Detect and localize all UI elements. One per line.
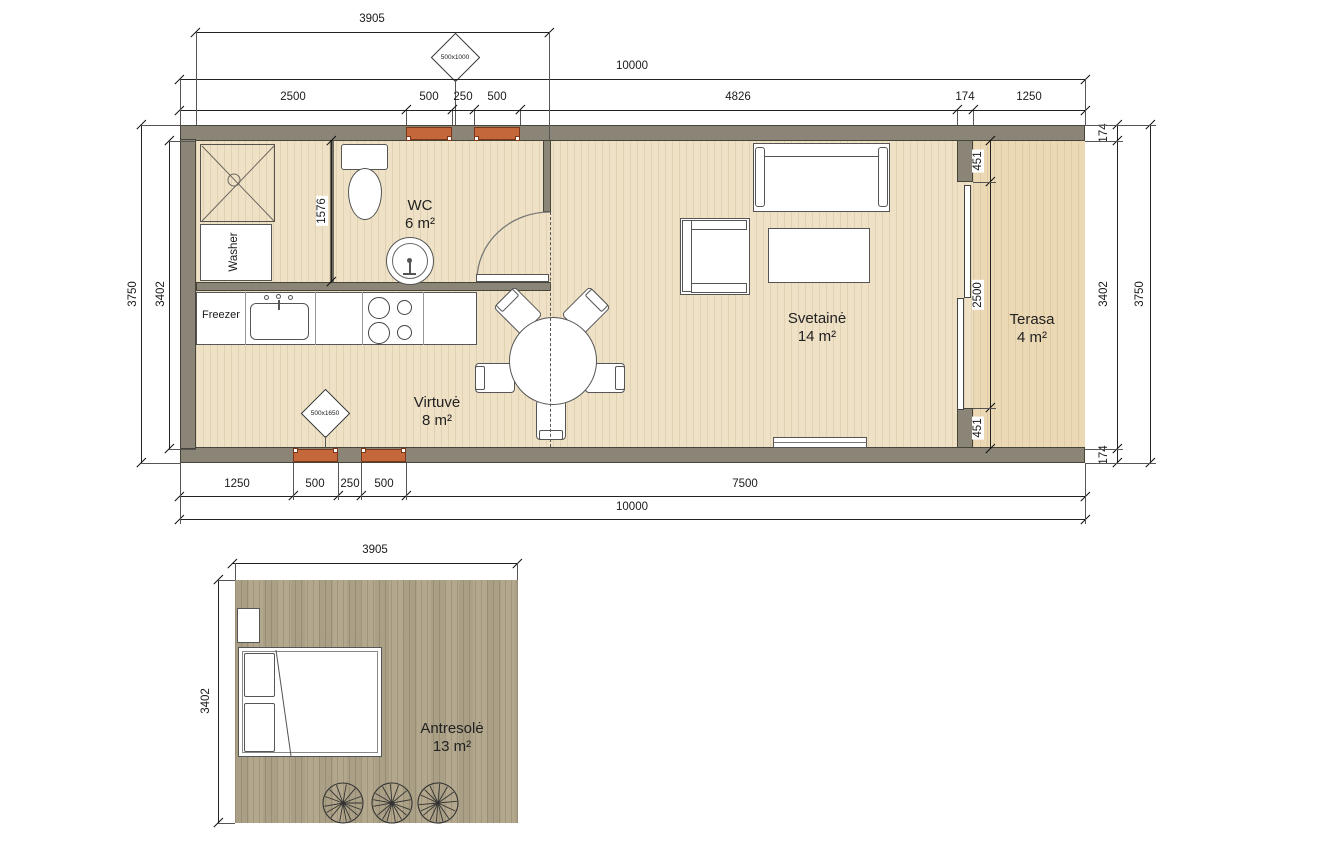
floorplan-drawing: Washer Freezer [0,0,1329,853]
room-name: WC [405,197,435,215]
wc-partition-wall [543,140,551,212]
terrace-wall-stub-bottom [957,408,973,448]
dim-line-top-chain [180,110,1085,111]
faucet-dot [276,294,281,299]
extension-line [1085,463,1156,464]
dim-text: 250 [453,91,472,103]
dim-text: 3402 [1098,281,1110,307]
extension-line [169,449,196,450]
faucet-dot [264,295,269,300]
room-name: Svetainė [788,310,846,328]
stove-burner [397,325,412,340]
dim-line-loft-height [218,580,219,823]
shower-pattern [201,145,276,223]
room-label-kitchen: Virtuvė 8 m² [414,394,460,430]
window-size-label: 500x1650 [302,390,348,436]
extension-line [196,32,197,125]
faucet-dot [288,295,293,300]
bathroom-partition-wall [196,282,551,291]
extension-line [338,463,339,500]
dim-text: 250 [340,478,359,490]
dim-text: 10000 [616,501,648,513]
extension-line [973,182,996,183]
terrace-wall-stub-top [957,140,973,182]
pillow [244,653,275,697]
blanket-fold-line [272,648,296,758]
room-area: 14 m² [788,328,846,346]
dim-text: 174 [1098,123,1110,142]
counter-divider [315,292,316,345]
sliding-door-panel [964,185,971,298]
chair [536,400,566,440]
extension-line [1085,463,1086,524]
window-marker-diamond: 500x1650 [302,390,348,436]
toilet-tank [341,144,388,170]
extension-line [517,563,518,580]
dim-line-bath [331,141,332,282]
dim-text: 3402 [200,688,212,714]
extension-line [474,111,475,125]
dim-text: 3750 [1134,281,1146,307]
dim-text: 2500 [280,91,306,103]
extension-line [180,79,181,125]
dim-text: 3905 [362,544,388,556]
room-name: Antresolė [420,720,483,738]
room-area: 4 m² [1009,329,1054,347]
door-swing-arc [474,210,552,282]
counter-divider [423,292,424,345]
dim-text: 500 [487,91,506,103]
extension-line [520,111,521,125]
wall-left [180,139,196,449]
nightstand [237,608,260,643]
dining-table [509,317,597,405]
extension-line [973,408,996,409]
dim-line-10000-top [180,79,1085,80]
room-area: 13 m² [420,738,483,756]
section-line [550,212,551,447]
extension-line [452,111,453,125]
room-label-terrace: Terasa 4 m² [1009,311,1054,347]
dim-text: 3402 [155,281,167,307]
room-area: 8 m² [414,412,460,430]
window [293,449,338,462]
extension-line [1085,79,1086,125]
ceiling-fan-symbols [322,781,462,825]
stove-burner [368,297,390,319]
room-label-wc: WC 6 m² [405,197,435,233]
coffee-table [768,228,870,283]
stove-burner [368,322,390,344]
extension-line [957,111,958,125]
dim-text: 7500 [732,478,758,490]
sliding-door-panel [957,298,964,410]
extension-line [1085,449,1123,450]
stove-burner [397,300,412,315]
door-leaf [476,274,549,282]
sofa [753,143,890,212]
extension-line [293,463,294,500]
window [406,127,452,140]
extension-line [361,463,362,500]
marker-stem [325,436,326,448]
dim-line-loft-width [233,563,517,564]
dim-line-10000-bottom [180,519,1085,520]
dim-line-left-outer [141,125,142,463]
dim-text: 451 [972,149,984,172]
extension-line [235,563,236,580]
dim-line-right-outer [1150,125,1151,463]
wc-sink-faucet-bar [403,273,416,275]
dim-text: 4826 [725,91,751,103]
extension-line [406,463,407,500]
counter-divider [362,292,363,345]
extension-line [141,463,180,464]
dim-text: 174 [955,91,974,103]
room-label-loft: Antresolė 13 m² [420,720,483,756]
sofa-backrest [764,144,879,157]
extension-line [218,580,235,581]
room-label-living: Svetainė 14 m² [788,310,846,346]
dim-line-left-inner [169,141,170,449]
counter-divider [245,292,246,345]
dim-text: 3750 [127,281,139,307]
extension-line [169,141,196,142]
room-name: Virtuvė [414,394,460,412]
dim-text: 2500 [972,280,984,310]
tv-bench [773,437,867,448]
dim-text: 500 [374,478,393,490]
armchair-arm [691,220,747,230]
pillow [244,703,275,752]
tv-bench-line [774,442,866,443]
extension-line [406,111,407,125]
extension-line [218,823,235,824]
extension-line [1085,141,1123,142]
room-area: 6 m² [405,215,435,233]
window [361,449,406,462]
dim-line-right-chain [1117,125,1118,463]
wall-top [180,125,1085,141]
dim-text: 10000 [616,60,648,72]
dim-text: 500 [305,478,324,490]
window [474,127,520,140]
dim-line-3905 [196,32,549,33]
dim-line-bottom-chain [180,496,1085,497]
armchair-arm [691,283,747,293]
dim-text: 1250 [224,478,250,490]
dim-text: 3905 [359,13,385,25]
dim-text: 500 [419,91,438,103]
faucet-stem [278,300,280,310]
freezer-label: Freezer [202,309,240,321]
window-marker-diamond: 500x1000 [432,34,478,80]
extension-line [1085,125,1156,126]
shower [200,144,275,222]
armchair-back [682,220,692,292]
dim-text: 451 [972,416,984,439]
extension-line [549,32,550,140]
armchair [680,218,750,295]
extension-line [141,125,180,126]
dim-line-terrace-chain [990,141,991,449]
wc-sink-dot [407,258,412,263]
extension-line [180,463,181,524]
dim-text: 1576 [316,196,328,226]
washer-label: Washer [228,232,240,271]
sofa-arm [878,147,888,207]
dim-text: 1250 [1016,91,1042,103]
extension-line [973,111,974,125]
window-size-label: 500x1000 [432,34,478,80]
room-name: Terasa [1009,311,1054,329]
